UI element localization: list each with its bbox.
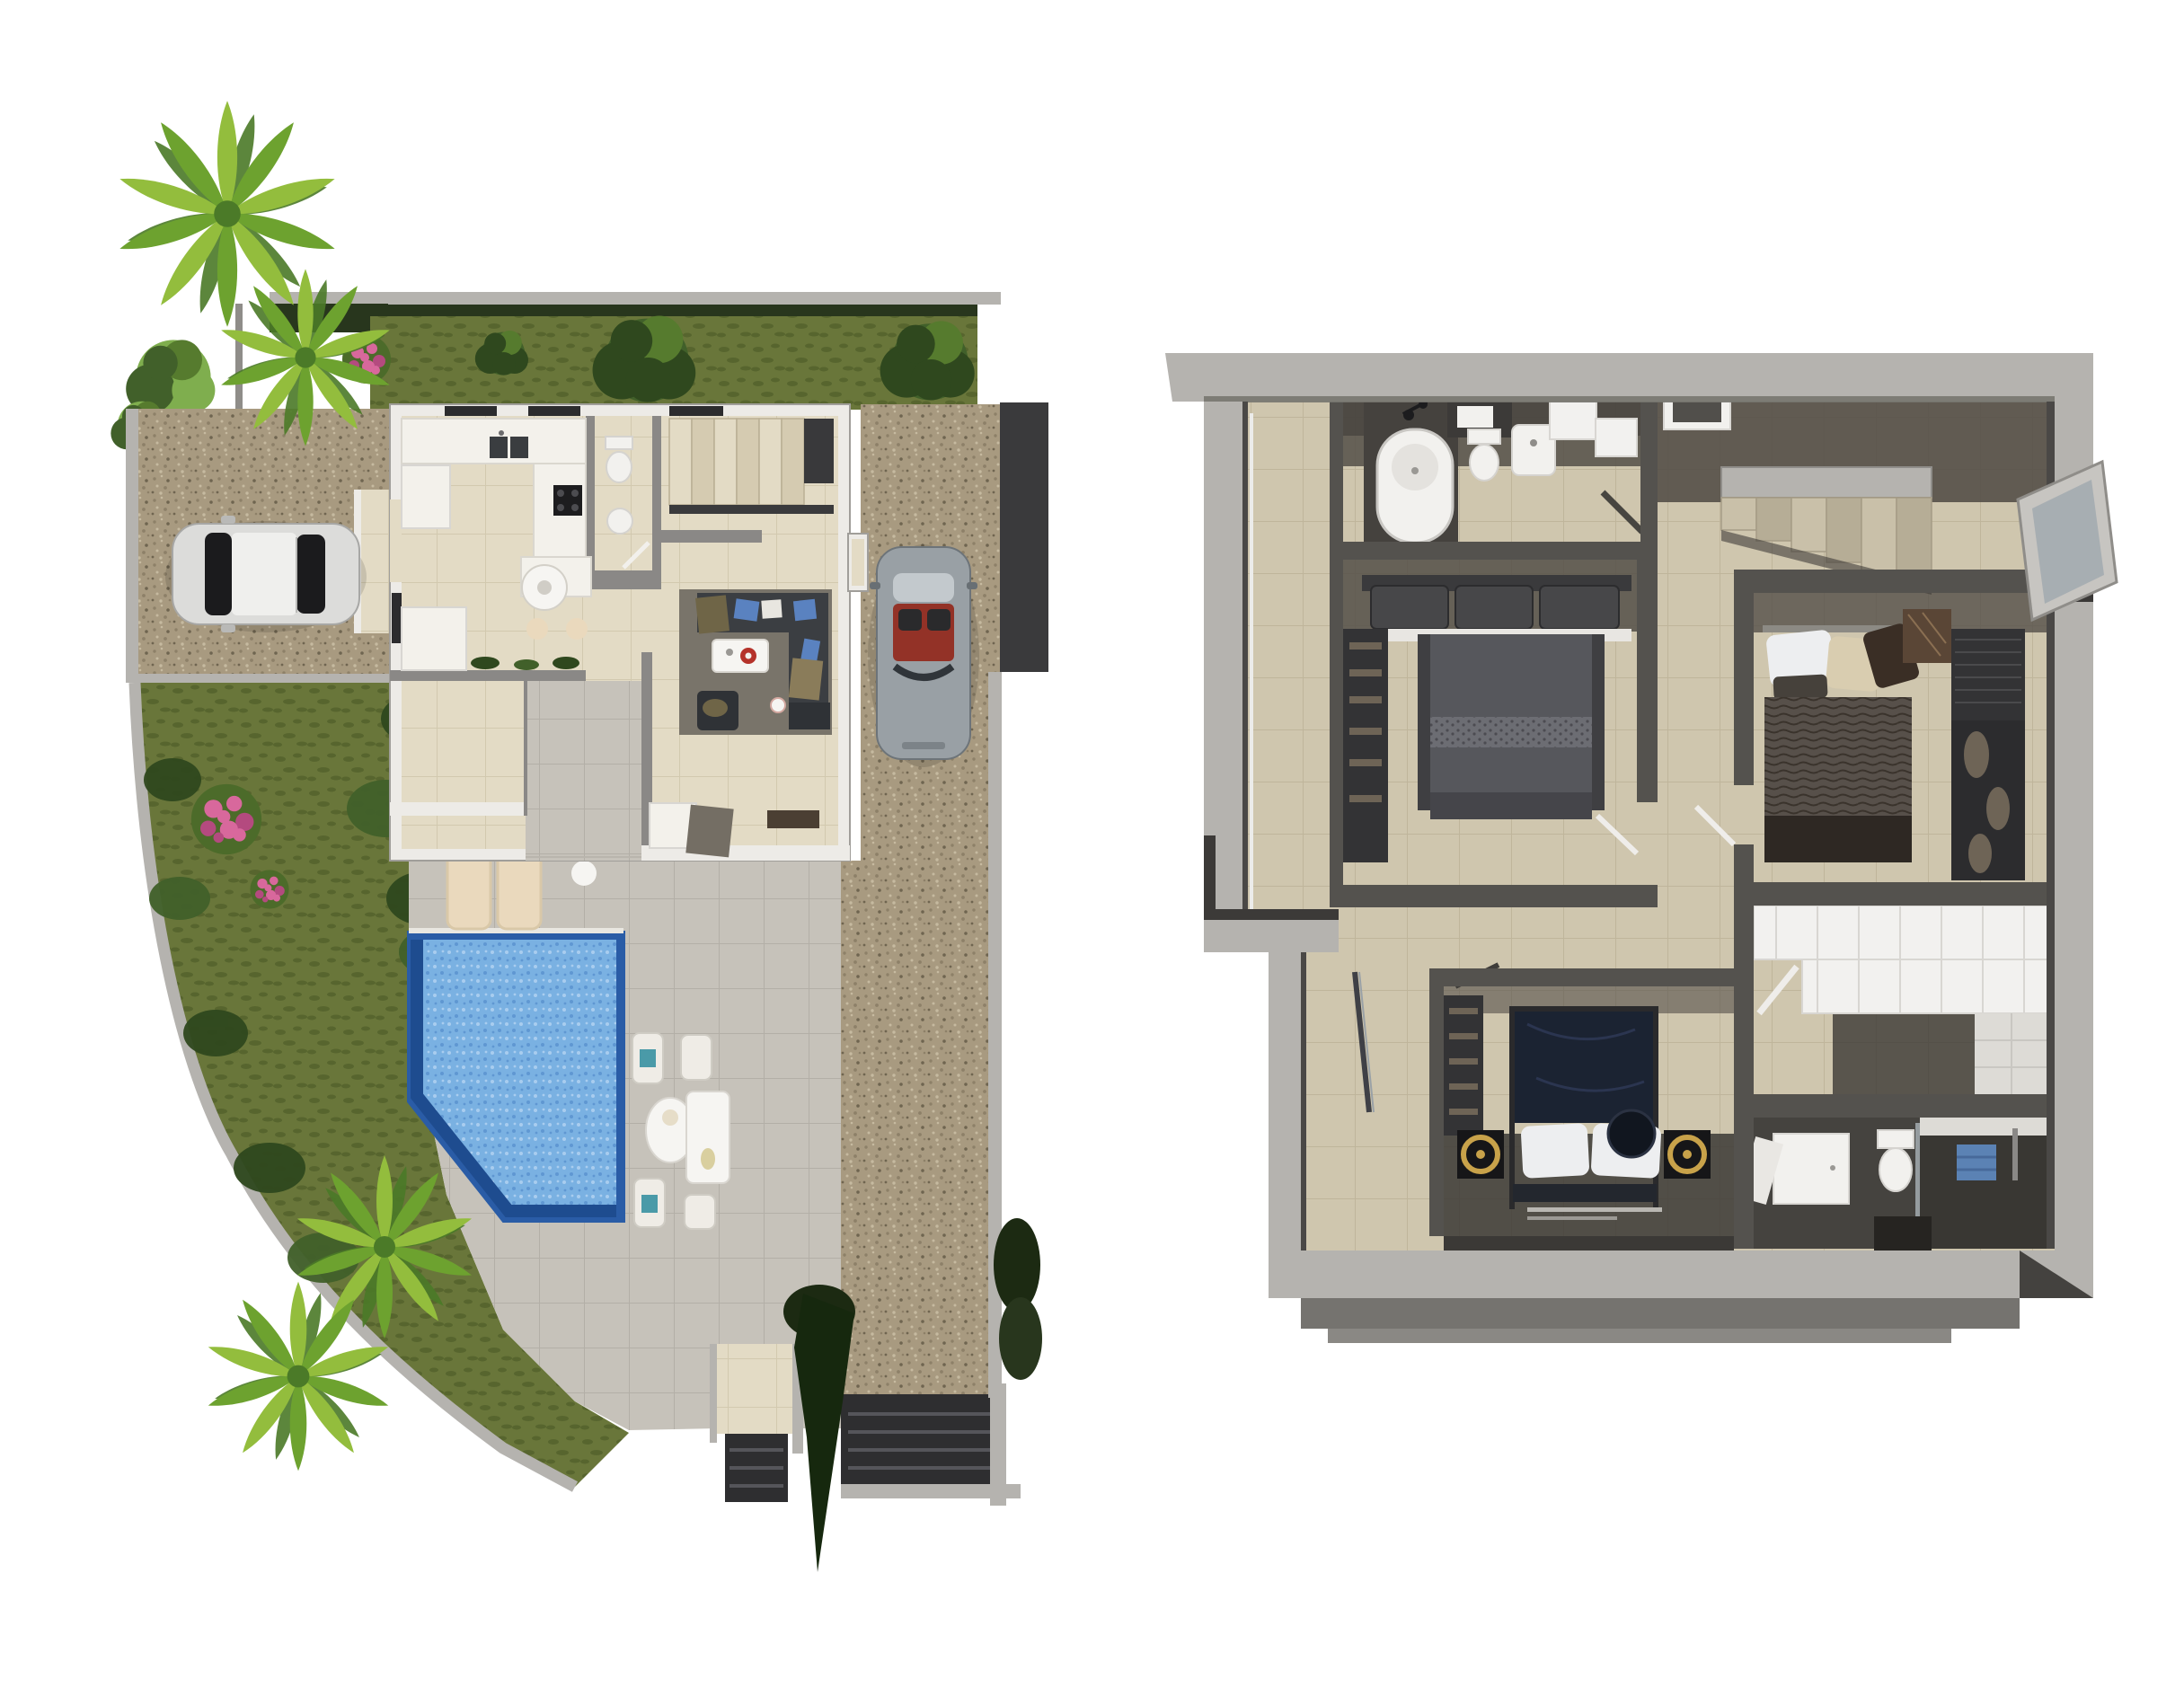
- shower-tray: [1874, 1216, 1932, 1252]
- wardrobe: [1444, 995, 1483, 1136]
- stair-rail: [1721, 467, 1932, 498]
- car-roof: [232, 533, 296, 615]
- entry-path: [361, 490, 390, 633]
- wardrobe: [1343, 629, 1388, 862]
- site-plan: [111, 101, 1048, 1572]
- left-wall: [1269, 952, 1301, 1298]
- inner-patio: [526, 681, 641, 861]
- kitchen-sink: [490, 437, 508, 458]
- tan-blanket: [789, 658, 823, 700]
- vanity-sink: [1457, 406, 1493, 428]
- doormat: [767, 810, 819, 828]
- stool: [566, 618, 588, 640]
- toilet: [1878, 1130, 1914, 1191]
- top-wall: [1204, 353, 2093, 402]
- built-in-cabinet: [402, 607, 466, 670]
- tiled-wall: [1975, 1013, 2048, 1094]
- nightstand-lamp: [1457, 1130, 1504, 1179]
- dark-cube-table: [685, 805, 733, 858]
- window: [669, 406, 723, 416]
- rear-window: [296, 535, 325, 614]
- windshield: [205, 533, 232, 615]
- blue-towel: [1957, 1144, 1996, 1180]
- pink-flower-bush: [191, 784, 261, 854]
- stairwell-void: [804, 419, 834, 483]
- headboard: [1513, 1184, 1657, 1202]
- side-mirror: [221, 624, 235, 632]
- floor-plan: [1165, 353, 2117, 1343]
- white-car: [165, 516, 367, 632]
- house-ground-floor: [390, 404, 868, 861]
- stool: [526, 618, 548, 640]
- balcony-railing: [1250, 413, 1253, 934]
- window: [528, 406, 580, 416]
- house-wall: [390, 802, 526, 816]
- shower-wall: [1920, 1118, 2048, 1136]
- toilet: [1468, 429, 1500, 481]
- windshield: [893, 573, 954, 602]
- round-pillow: [1608, 1110, 1655, 1157]
- louvered-wardrobe: [1951, 629, 2025, 880]
- silver-car: [868, 544, 979, 767]
- stair-railing: [669, 505, 834, 514]
- bed-foot: [1764, 816, 1912, 862]
- window: [445, 406, 497, 416]
- throw-blanket: [695, 595, 729, 633]
- marble-panel: [1903, 609, 1951, 663]
- shower-unit: [1596, 419, 1637, 456]
- rear-boundary-wall: [270, 292, 1001, 305]
- boundary-wall: [126, 674, 410, 683]
- shower-unit: [1550, 402, 1596, 439]
- bottom-wall: [1269, 1251, 2093, 1298]
- closet-cabinets: [1802, 959, 2048, 1013]
- white-pillow: [761, 599, 782, 618]
- pillow: [1540, 586, 1619, 629]
- cooktop: [553, 485, 582, 516]
- side-window-nook: [848, 534, 868, 591]
- shower-bar: [2012, 1128, 2018, 1180]
- outdoor-chair: [685, 1195, 715, 1229]
- floorplan-scene: [0, 0, 2184, 1688]
- double-bed-gray: [1418, 634, 1605, 819]
- entrance-porch: [1301, 1298, 2020, 1329]
- pillow: [1521, 1123, 1590, 1179]
- entrance-steps: [725, 1434, 788, 1502]
- boundary-wall: [126, 409, 138, 683]
- render-canvas: [0, 0, 2184, 1688]
- walkway: [717, 1344, 792, 1434]
- blue-pillow: [734, 598, 760, 621]
- blue-pillow: [793, 599, 817, 621]
- pillow: [1371, 586, 1448, 629]
- toilet: [606, 437, 632, 449]
- car-seat: [927, 609, 951, 631]
- window: [392, 593, 402, 643]
- dark-screen-wall: [1000, 402, 1048, 672]
- side-mirror: [967, 582, 977, 589]
- nightstand-lamp: [1664, 1130, 1711, 1179]
- washbasin-unit: [1512, 425, 1555, 475]
- side-mirror: [221, 516, 235, 524]
- car-seat: [898, 609, 922, 631]
- storage-chest: [1738, 1134, 1849, 1205]
- outdoor-chair: [681, 1035, 712, 1080]
- closet-cabinets: [1754, 906, 2048, 959]
- washbasin: [607, 508, 632, 534]
- side-table: [771, 698, 785, 712]
- side-mirror: [870, 582, 880, 589]
- pink-flower-bush: [250, 870, 288, 908]
- pillow: [1455, 586, 1533, 629]
- built-in-cabinet: [402, 465, 450, 528]
- entry-door-opening: [390, 499, 402, 582]
- textured-blanket: [1764, 697, 1912, 816]
- lumbar-pillow: [1773, 674, 1827, 700]
- lower-entrance-grille: [841, 1383, 1021, 1506]
- side-table: [571, 861, 597, 886]
